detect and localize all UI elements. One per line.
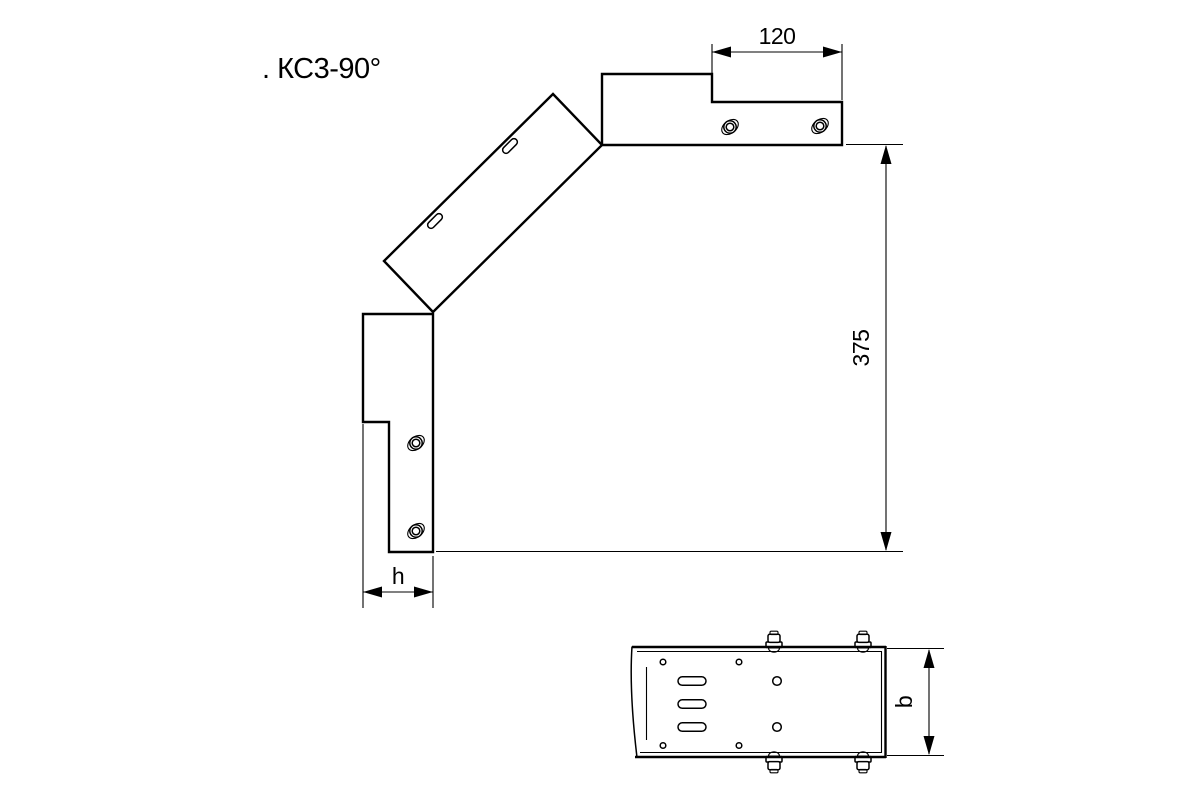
vertical-section-outline <box>363 314 433 552</box>
angled-section-outline <box>384 94 602 312</box>
front-view: 120 375 h <box>363 23 903 608</box>
dim-flange-height-label: h <box>392 563 404 589</box>
mounting-holes <box>660 659 781 748</box>
bolt-side-icon <box>855 631 871 652</box>
vertical-section <box>363 314 433 552</box>
technical-drawing-canvas: 120 375 h <box>0 0 1200 800</box>
bolt-side-icon <box>855 752 871 773</box>
dimension-tray-width: b <box>887 649 944 756</box>
small-hole <box>736 743 742 749</box>
dim-top-width-label: 120 <box>759 23 796 49</box>
small-hole <box>736 659 742 665</box>
small-hole <box>660 743 666 749</box>
bolt-side-icon <box>766 631 782 652</box>
drawing-page: 120 375 h <box>0 0 1200 800</box>
oval-slot <box>678 677 706 686</box>
dim-side-height-label: 375 <box>848 330 874 367</box>
oval-slot <box>678 700 706 709</box>
dimension-top-width: 120 <box>712 23 842 100</box>
bolt-hole <box>773 723 782 732</box>
tray-plate <box>631 646 886 758</box>
top-plate-outline <box>602 74 842 145</box>
bolt-hole <box>773 677 782 686</box>
bolt-side-icon <box>766 752 782 773</box>
angled-section <box>384 94 602 312</box>
break-line <box>631 647 637 758</box>
top-plate-section <box>602 74 842 145</box>
dim-tray-width-label: b <box>891 696 917 708</box>
small-hole <box>660 659 666 665</box>
oval-slot <box>678 723 706 732</box>
drawing-title: . КС3-90° <box>262 53 381 85</box>
top-view: b <box>631 631 944 773</box>
